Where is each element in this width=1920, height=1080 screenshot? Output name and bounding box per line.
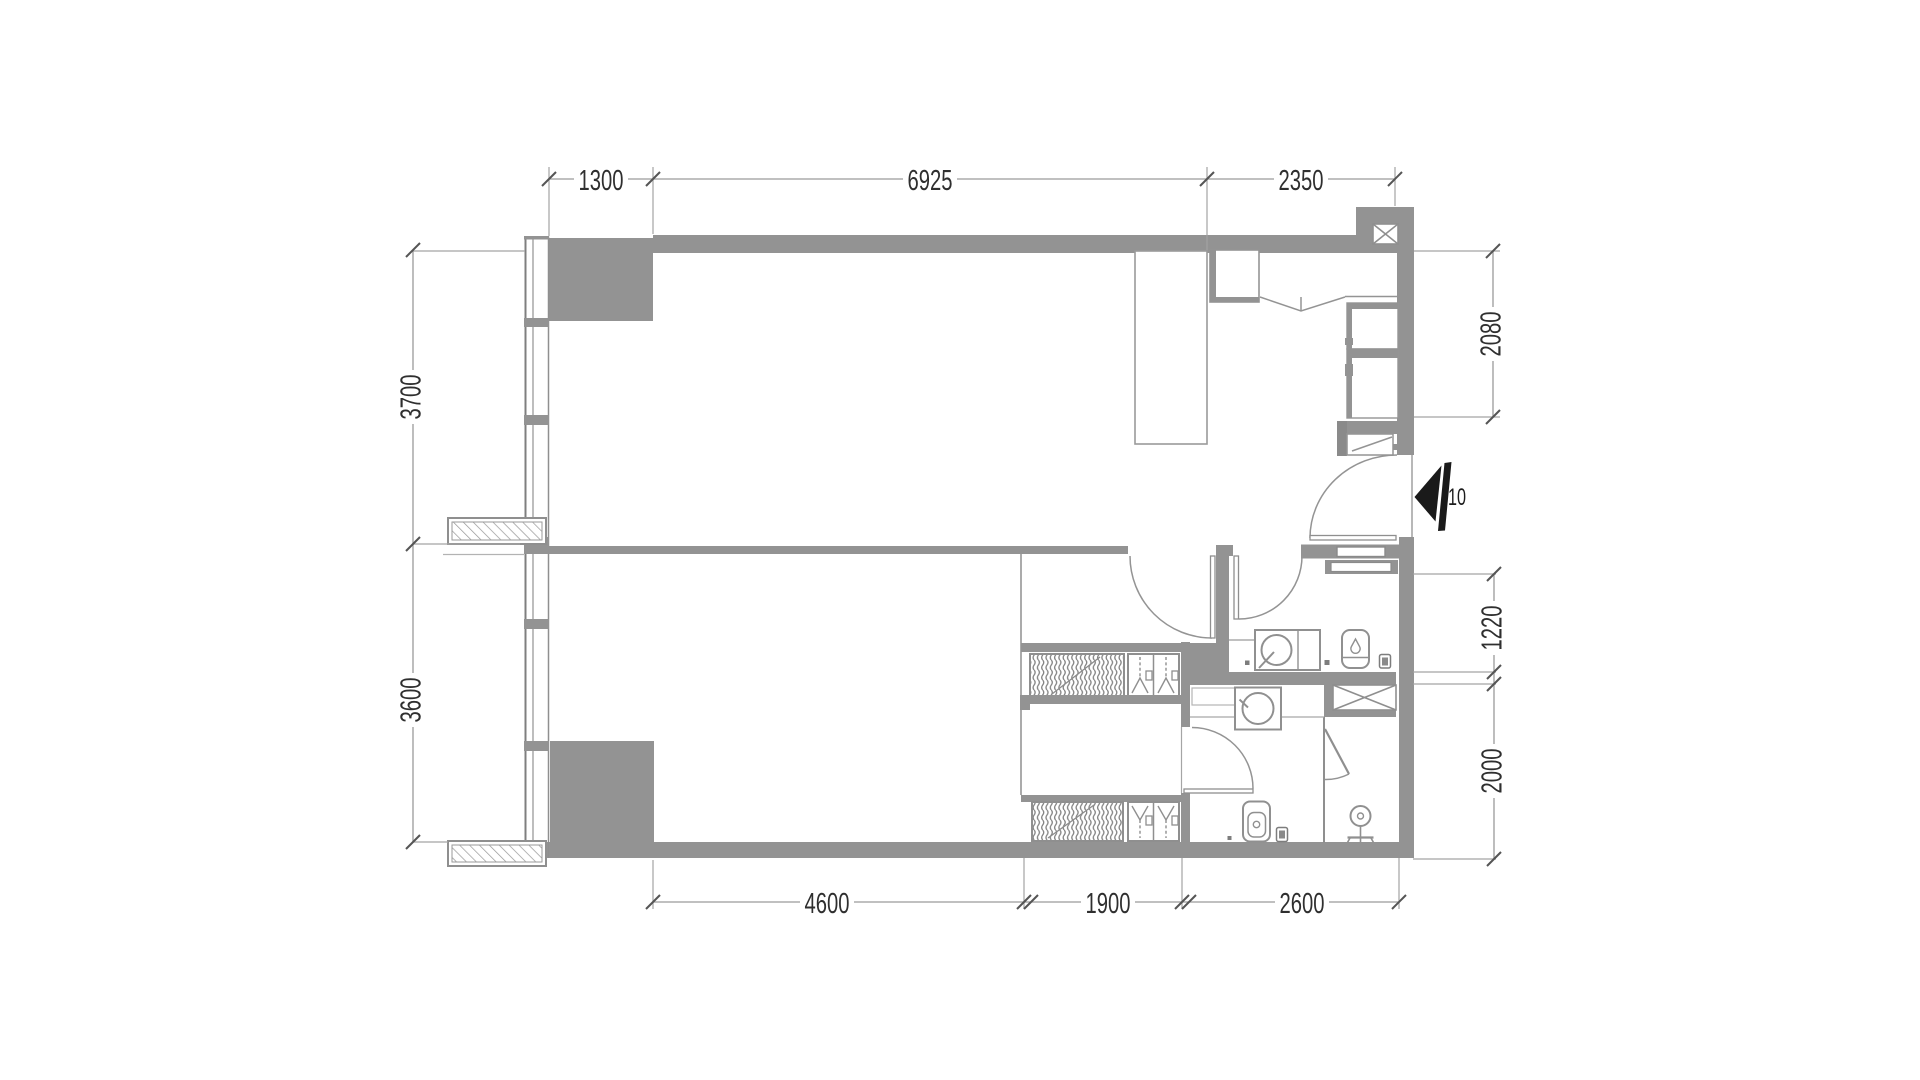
svg-text:2080: 2080 (1476, 312, 1508, 357)
svg-text:4600: 4600 (805, 888, 850, 920)
svg-text:1220: 1220 (1477, 606, 1509, 651)
svg-text:6925: 6925 (908, 165, 953, 197)
svg-text:1300: 1300 (579, 165, 624, 197)
svg-text:2000: 2000 (1477, 749, 1509, 794)
svg-text:3600: 3600 (396, 678, 428, 723)
svg-text:10: 10 (1448, 484, 1466, 511)
svg-text:2350: 2350 (1279, 165, 1324, 197)
svg-text:2600: 2600 (1280, 888, 1325, 920)
svg-text:1900: 1900 (1086, 888, 1131, 920)
svg-text:3700: 3700 (396, 375, 428, 420)
